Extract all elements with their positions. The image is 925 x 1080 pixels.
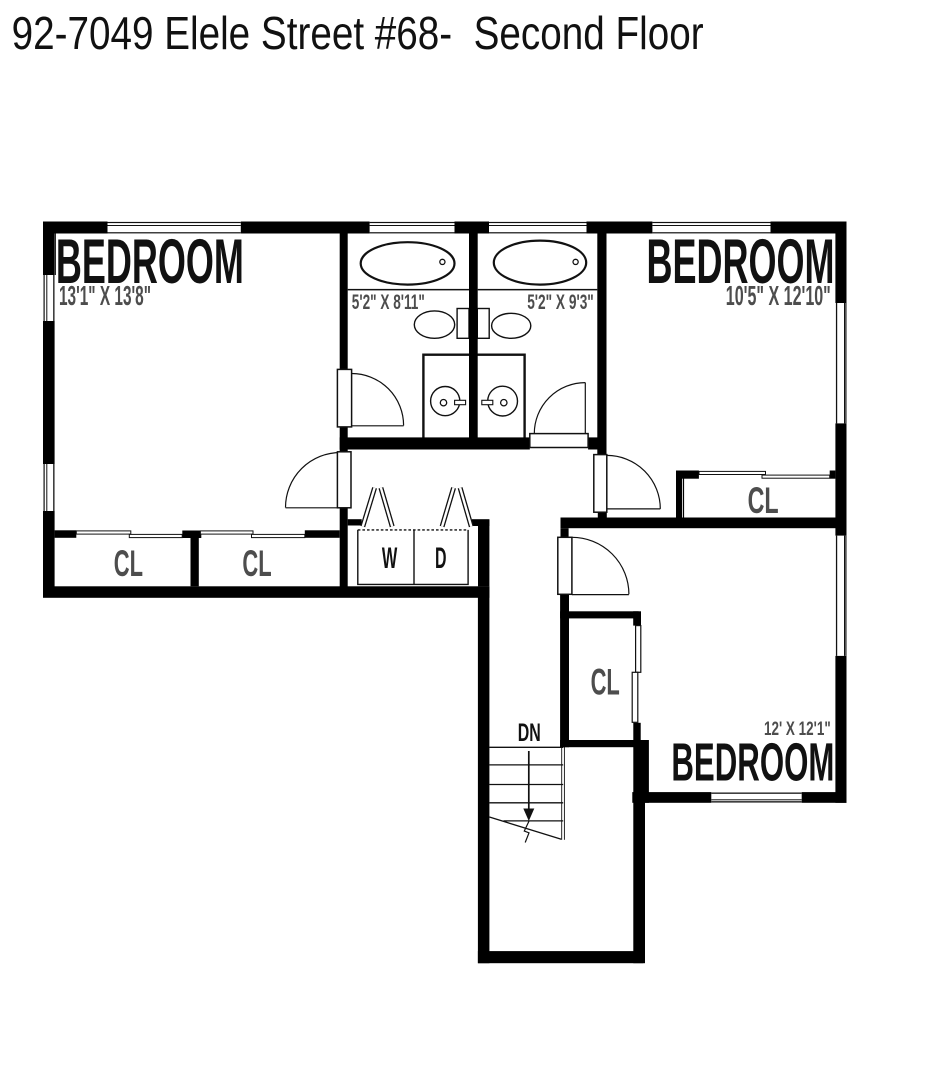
svg-text:D: D bbox=[435, 543, 447, 575]
svg-text:12' X 12'1": 12' X 12'1" bbox=[764, 719, 831, 740]
svg-text:CL: CL bbox=[591, 660, 620, 702]
svg-text:10'5" X 12'10": 10'5" X 12'10" bbox=[726, 280, 831, 311]
svg-text:5'2" X 9'3": 5'2" X 9'3" bbox=[527, 290, 594, 314]
svg-text:92-7049 Elele Street #68- Sec: 92-7049 Elele Street #68- Second Floor bbox=[12, 7, 704, 59]
svg-text:CL: CL bbox=[242, 542, 271, 584]
svg-text:CL: CL bbox=[748, 479, 779, 521]
svg-text:W: W bbox=[382, 543, 398, 575]
svg-text:BEDROOM: BEDROOM bbox=[671, 733, 834, 792]
svg-text:DN: DN bbox=[518, 720, 541, 747]
svg-text:13'1" X 13'8": 13'1" X 13'8" bbox=[59, 280, 151, 311]
svg-text:5'2" X 8'11": 5'2" X 8'11" bbox=[352, 290, 425, 314]
svg-text:CL: CL bbox=[114, 542, 143, 584]
